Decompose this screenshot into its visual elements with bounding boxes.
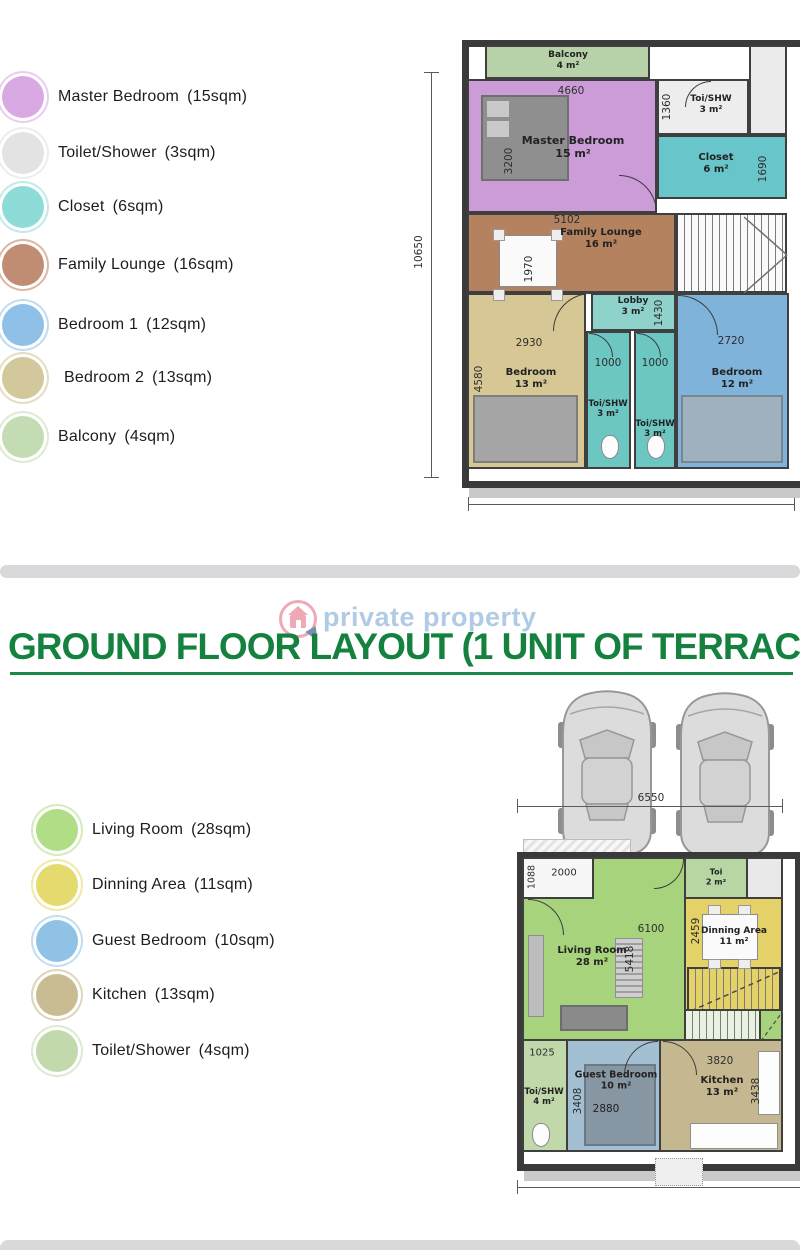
legend-label: Master Bedroom(15sqm) [58,88,247,106]
dim-1970: 1970 [523,256,535,283]
legend-swatch-master-bedroom [2,76,44,118]
label-balcony: Balcony4 m² [548,50,588,72]
dimension-tick [424,72,439,73]
chair [551,289,563,301]
label-toi-shw-top: Toi/SHW3 m² [690,94,731,116]
label-closet: Closet6 m² [698,152,733,176]
legend-label: Living Room(28sqm) [92,821,251,839]
kitchen-counter [690,1123,778,1149]
label-toi-shw-b: Toi/SHW3 m² [635,419,674,439]
label-toi-small: Toi2 m² [706,867,726,886]
legend-item-master-bedroom: Master Bedroom(15sqm) [2,76,247,118]
legend-swatch-kitchen [36,974,78,1016]
legend-label: Family Lounge(16sqm) [58,256,234,274]
legend-swatch-closet [2,186,44,228]
sofa [560,1005,628,1031]
dimension-tick [517,1180,518,1194]
legend-label: Bedroom 1(12sqm) [58,316,206,334]
chair [738,959,751,969]
dim-4660: 4660 [558,85,585,97]
label-master-bedroom: Master Bedroom15 m² [522,134,625,160]
legend-swatch-living-room [36,809,78,851]
dim-5418: 5418 [624,946,636,973]
dim-2880: 2880 [593,1103,620,1115]
legend-item-toilet-shower: Toilet/Shower(3sqm) [2,132,216,174]
dim-2000: 2000 [551,868,576,879]
chair [493,229,505,241]
legend-label: Toilet/Shower(3sqm) [58,144,216,162]
legend-item-dinning-area: Dinning Area(11sqm) [36,864,253,906]
legend-swatch-dinning-area [36,864,78,906]
legend-label: Kitchen(13sqm) [92,986,215,1004]
toilet-icon [532,1123,550,1147]
car-icon [556,690,658,862]
dim-3820: 3820 [707,1055,734,1067]
label-family-lounge: Family Lounge16 m² [560,227,642,251]
bottom-divider [0,1240,800,1250]
title-underline [10,672,793,675]
corner-block [746,857,783,899]
stairs-lower-flight [684,1009,761,1041]
label-bedroom-2: Bedroom13 m² [506,367,557,391]
chair [708,959,721,969]
dim-1360: 1360 [661,94,673,121]
logo-roof-icon [288,606,308,615]
tv-unit [528,935,544,1017]
dim-1000-b: 1000 [642,357,669,369]
legend-swatch-toilet-shower [2,132,44,174]
legend-item-balcony: Balcony(4sqm) [2,416,175,458]
stairs-upper-flight [687,967,781,1011]
label-lobby: Lobby3 m² [618,296,649,318]
legend-swatch-guest-bedroom [36,920,78,962]
dimension-line-bottom-gf [517,1187,800,1188]
label-kitchen: Kitchen13 m² [701,1075,744,1099]
legend-swatch-balcony [2,416,44,458]
dim-1430: 1430 [653,300,665,327]
legend-swatch-bedroom-1 [2,304,44,346]
dimension-tick [782,799,783,813]
legend-item-family-lounge: Family Lounge(16sqm) [2,244,234,286]
dim-1088: 1088 [527,865,538,889]
dimension-tick [517,799,518,813]
label-dinning-area: Dinning Area11 m² [701,926,767,948]
dim-3438: 3438 [750,1078,762,1105]
dimension-line-6550 [517,806,783,807]
dim-1000-a: 1000 [595,357,622,369]
label-toi-shw-a: Toi/SHW3 m² [588,399,627,419]
label-toi-shw-ground: Toi/SHW4 m² [524,1087,563,1107]
page-title: GROUND FLOOR LAYOUT (1 UNIT OF TERRACE) [8,626,800,668]
porch-step [655,1158,703,1186]
legend-item-living-room: Living Room(28sqm) [36,809,251,851]
stair-landing [759,1009,783,1041]
legend-item-guest-bedroom: Guest Bedroom(10sqm) [36,920,275,962]
dim-1690: 1690 [757,156,769,183]
bed-bedroom-1 [681,395,783,463]
car-icon [674,692,776,864]
legend-item-closet: Closet(6sqm) [2,186,164,228]
chair [493,289,505,301]
legend-label: Guest Bedroom(10sqm) [92,932,275,950]
legend-item-kitchen: Kitchen(13sqm) [36,974,215,1016]
dim-5102: 5102 [554,214,581,226]
section-divider [0,565,800,578]
legend-label: Bedroom 2(13sqm) [64,369,212,387]
chair [708,905,721,915]
legend-item-bedroom-2: Bedroom 2(13sqm) [2,357,212,399]
legend-item-toilet-shower-gf: Toilet/Shower(4sqm) [36,1030,250,1072]
dimension-tick [424,477,439,478]
chair [738,905,751,915]
ledge-strip [749,45,787,135]
dimension-tick [468,497,469,511]
label-bedroom-1: Bedroom12 m² [712,367,763,391]
first-floor-plan: Balcony4 m² 4660 3200 Master Bedroom15 m… [462,40,800,488]
stairs-first-floor [676,213,787,293]
bed-bedroom-2 [473,395,578,463]
label-guest-bedroom: Guest Bedroom10 m² [575,1070,658,1093]
legend-swatch-bedroom-2 [2,357,44,399]
dim-2930: 2930 [516,337,543,349]
label-living-room: Living Room28 m² [557,945,626,969]
legend-label: Toilet/Shower(4sqm) [92,1042,250,1060]
dim-3200: 3200 [503,148,515,175]
ground-floor-plan: 1088 2000 Living Room28 m² 6100 5418 Toi… [517,852,800,1171]
dim-2720: 2720 [718,335,745,347]
dimension-line-vertical [431,72,432,478]
legend-label: Closet(6sqm) [58,198,164,216]
dim-1025: 1025 [529,1048,554,1059]
dim-6550: 6550 [638,792,665,804]
dim-overall-height: 10650 [413,235,425,268]
legend-swatch-toilet-shower-gf [36,1030,78,1072]
legend-item-bedroom-1: Bedroom 1(12sqm) [2,304,206,346]
dim-6100: 6100 [638,923,665,935]
legend-swatch-family-lounge [2,244,44,286]
dimension-tick [794,497,795,511]
legend-label: Dinning Area(11sqm) [92,876,253,894]
dim-4580: 4580 [473,366,485,393]
toilet-icon [601,435,619,459]
floor-plan-page: Master Bedroom(15sqm) Toilet/Shower(3sqm… [0,0,800,1250]
dimension-line-bottom [468,504,795,505]
legend-label: Balcony(4sqm) [58,428,175,446]
